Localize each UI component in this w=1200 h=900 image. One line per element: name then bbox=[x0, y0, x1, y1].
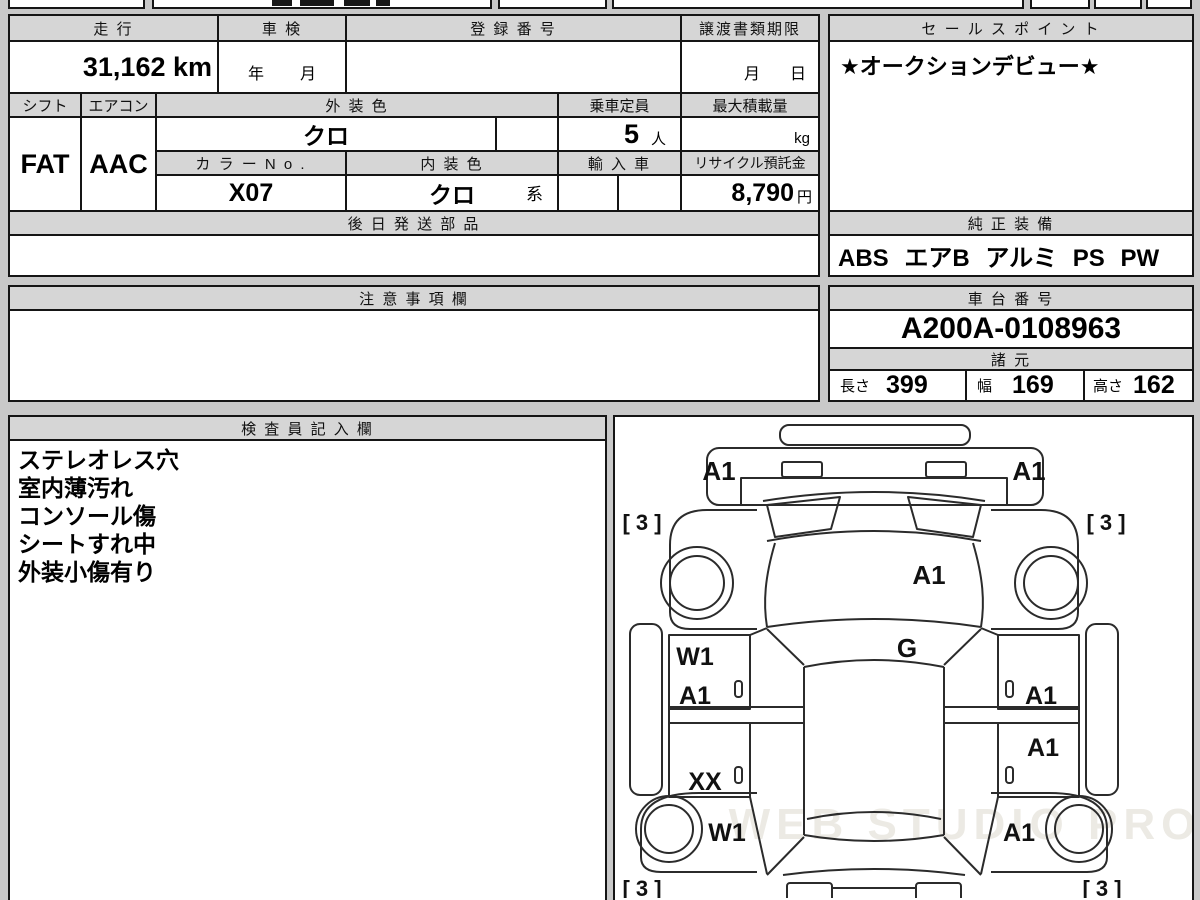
front-bumper-strip bbox=[780, 425, 970, 445]
import-car-cell-1 bbox=[557, 174, 619, 212]
front-wheel-right bbox=[1015, 547, 1087, 619]
damage-mark-rear-fender-left: W1 bbox=[708, 819, 746, 847]
inspection-header: 車 検 bbox=[217, 14, 347, 42]
max-load-value: kg bbox=[680, 116, 820, 152]
inspector-note-line: ステレオレス穴 bbox=[18, 446, 597, 474]
capacity-unit: 人 bbox=[651, 128, 666, 149]
shift-value: FAT bbox=[8, 116, 82, 212]
equipment-header: 純 正 装 備 bbox=[828, 210, 1194, 236]
damage-mark-hood: A1 bbox=[912, 560, 945, 590]
clipped-text-fragment bbox=[300, 0, 334, 6]
damage-mark-rear-door-right: A1 bbox=[1027, 734, 1059, 762]
chassis-number-header: 車 台 番 号 bbox=[828, 285, 1194, 311]
clipped-text-fragment bbox=[344, 0, 370, 6]
tire-depth-rear-right: [ 3 ] bbox=[1082, 876, 1121, 898]
door-handle bbox=[1006, 767, 1013, 783]
front-fender-right bbox=[991, 510, 1078, 629]
exterior-color-extra-cell bbox=[495, 116, 559, 152]
spec-width-label: 幅 bbox=[977, 375, 992, 396]
car-damage-diagram-box: WEB STUDIO PRO bbox=[613, 415, 1194, 900]
caution-value bbox=[8, 309, 820, 402]
spec-width-cell: 幅 169 bbox=[965, 369, 1085, 402]
inspector-notes-header: 検 査 員 記 入 欄 bbox=[8, 415, 607, 441]
damage-mark-rear-fender-right: A1 bbox=[1003, 819, 1035, 847]
recycle-deposit-header: リサイクル預託金 bbox=[680, 150, 820, 176]
aircon-value: AAC bbox=[80, 116, 157, 212]
spec-height-cell: 高さ 162 bbox=[1083, 369, 1194, 402]
import-car-cell-2 bbox=[617, 174, 682, 212]
clipped-top-cell bbox=[498, 0, 607, 9]
aircon-header: エアコン bbox=[80, 92, 157, 118]
inspector-notes-body: ステレオレス穴 室内薄汚れ コンソール傷 シートすれ中 外装小傷有り bbox=[8, 439, 607, 900]
car-diagram: WEB STUDIO PRO bbox=[615, 417, 1192, 898]
transfer-day-label: 日 bbox=[790, 60, 806, 84]
max-load-header: 最大積載量 bbox=[680, 92, 820, 118]
clipped-top-cell bbox=[1094, 0, 1142, 9]
transfer-month-label: 月 bbox=[744, 60, 760, 84]
mileage-header: 走 行 bbox=[8, 14, 219, 42]
headlight-left bbox=[767, 497, 840, 537]
inspector-note-line: 外装小傷有り bbox=[18, 558, 597, 586]
shift-header: シフト bbox=[8, 92, 82, 118]
front-fender-left bbox=[670, 510, 757, 629]
damage-mark-front-bumper-left: A1 bbox=[702, 456, 735, 486]
capacity-number: 5 bbox=[624, 119, 639, 150]
front-bumper bbox=[707, 448, 1043, 505]
inspector-note-line: 室内薄汚れ bbox=[18, 474, 597, 502]
rear-bumper-left bbox=[787, 883, 832, 898]
damage-mark-front-door-right: A1 bbox=[1025, 682, 1057, 710]
tire-depth-rear-left: [ 3 ] bbox=[622, 876, 661, 898]
sales-point-value: ★オークションデビュー★ bbox=[828, 40, 1194, 212]
tire-depth-front-right: [ 3 ] bbox=[1086, 510, 1125, 535]
spec-height-value: 162 bbox=[1133, 371, 1175, 400]
transfer-deadline-header: 譲渡書類期限 bbox=[680, 14, 820, 42]
later-parts-header: 後 日 発 送 部 品 bbox=[8, 210, 820, 236]
inspection-value: 年 月 bbox=[217, 40, 347, 94]
spec-length-cell: 長さ 399 bbox=[828, 369, 967, 402]
spec-length-label: 長さ bbox=[840, 375, 870, 396]
exterior-color-value: クロ bbox=[155, 116, 497, 152]
clipped-top-cell bbox=[8, 0, 145, 9]
spec-length-value: 399 bbox=[886, 371, 928, 400]
clipped-top-cell bbox=[1030, 0, 1090, 9]
capacity-value: 5 人 bbox=[557, 116, 682, 152]
spec-height-label: 高さ bbox=[1093, 375, 1123, 396]
damage-mark-rear-door-left: XX bbox=[688, 768, 722, 796]
interior-color-header: 内 装 色 bbox=[345, 150, 559, 176]
registration-number-value bbox=[345, 40, 682, 94]
mileage-value: 31,162 km bbox=[8, 40, 219, 94]
specs-header: 諸 元 bbox=[828, 347, 1194, 371]
spec-width-value: 169 bbox=[1012, 371, 1054, 400]
registration-number-header: 登 録 番 号 bbox=[345, 14, 682, 42]
headlight-right bbox=[908, 497, 981, 537]
inspection-month-label: 月 bbox=[300, 60, 316, 84]
damage-mark-front-door-left-lower: A1 bbox=[679, 682, 711, 710]
caution-header: 注 意 事 項 欄 bbox=[8, 285, 820, 311]
recycle-deposit-value: 8,790 円 bbox=[680, 174, 820, 212]
side-sill-left bbox=[630, 624, 662, 795]
damage-mark-front-bumper-right: A1 bbox=[1012, 456, 1045, 486]
chassis-number-value: A200A-0108963 bbox=[828, 309, 1194, 349]
tire-depth-front-left: [ 3 ] bbox=[622, 510, 661, 535]
capacity-header: 乗車定員 bbox=[557, 92, 682, 118]
damage-mark-cowl: G bbox=[897, 633, 917, 663]
color-no-value: X07 bbox=[155, 174, 347, 212]
exterior-color-header: 外 装 色 bbox=[155, 92, 559, 118]
rear-bumper-right bbox=[916, 883, 961, 898]
import-car-header: 輸 入 車 bbox=[557, 150, 682, 176]
recycle-deposit-number: 8,790 bbox=[731, 179, 794, 208]
front-wheel-left bbox=[661, 547, 733, 619]
inspector-note-line: シートすれ中 bbox=[18, 530, 597, 558]
interior-color-value: クロ 系 bbox=[345, 174, 559, 212]
damage-mark-front-door-left-upper: W1 bbox=[676, 643, 714, 671]
recycle-deposit-unit: 円 bbox=[797, 186, 812, 207]
inspection-year-label: 年 bbox=[248, 60, 264, 84]
sales-point-header: セ ー ル ス ポ イ ン ト bbox=[828, 14, 1194, 42]
transfer-deadline-value: 月 日 bbox=[680, 40, 820, 94]
equipment-value: ABS エアB アルミ PS PW bbox=[828, 234, 1194, 277]
side-sill-right bbox=[1086, 624, 1118, 795]
door-handle bbox=[735, 681, 742, 697]
auction-sheet: 走 行 車 検 登 録 番 号 譲渡書類期限 31,162 km 年 月 月 日… bbox=[0, 0, 1200, 900]
clipped-top-cell bbox=[1146, 0, 1192, 9]
later-parts-value bbox=[8, 234, 820, 277]
color-no-header: カ ラ ー N o . bbox=[155, 150, 347, 176]
rear-bumper-center bbox=[832, 888, 916, 898]
door-handle bbox=[1006, 681, 1013, 697]
clipped-text-fragment bbox=[376, 0, 390, 6]
interior-color-suffix: 系 bbox=[526, 180, 543, 205]
clipped-top-cell bbox=[612, 0, 1024, 9]
inspector-note-line: コンソール傷 bbox=[18, 502, 597, 530]
clipped-text-fragment bbox=[272, 0, 292, 6]
door-handle bbox=[735, 767, 742, 783]
max-load-unit: kg bbox=[794, 130, 810, 147]
